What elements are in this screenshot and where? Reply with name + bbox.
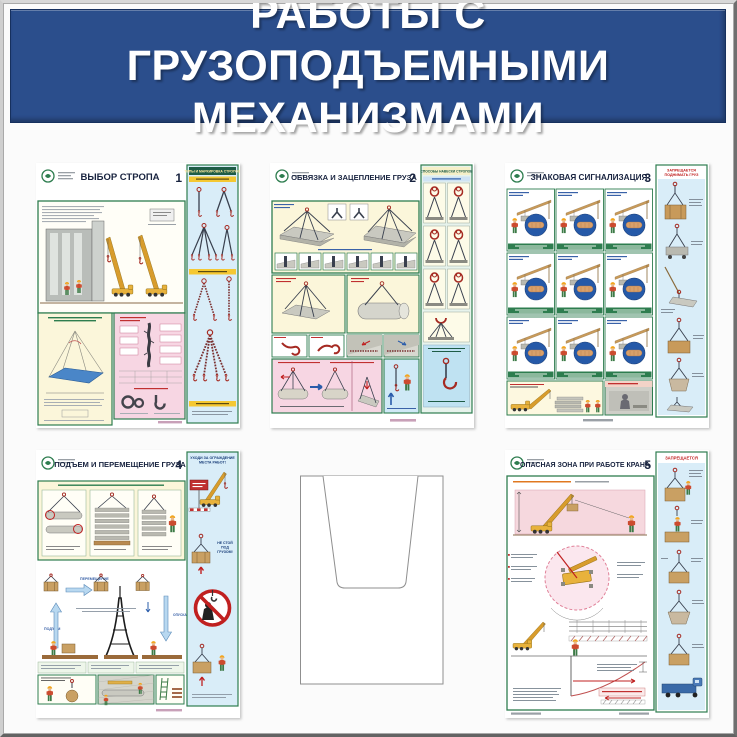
poster-2-number: 2: [409, 171, 416, 185]
worker-stack-cell: [138, 490, 181, 556]
p1-main-scene: [38, 201, 185, 313]
p2-header: ОБВЯЗКА И ЗАЦЕПЛЕНИЕ ГРУЗА 2: [276, 170, 417, 185]
poster-2-title: ОБВЯЗКА И ЗАЦЕПЛЕНИЕ ГРУЗА: [291, 173, 417, 182]
no-stand-caption-line1: НЕ СТОЙ: [217, 541, 233, 545]
poster-5-number: 5: [644, 458, 651, 472]
p4-bottom-cells: [38, 675, 184, 705]
poster-1-title: ВЫБОР СТРОПА: [80, 172, 159, 183]
p4-column-header-line1: УХОДИ ЗА ОГРАЖДЕНИЕ: [190, 456, 235, 460]
poster-1-number: 1: [175, 171, 182, 185]
footer-smallprint: [583, 419, 613, 421]
poster-3-title: ЗНАКОВАЯ СИГНАЛИЗАЦИЯ: [531, 173, 648, 182]
p2-worker-cell: [384, 359, 419, 413]
prohibition-sign-icon: [196, 590, 230, 625]
p1-geometry-section: [38, 313, 112, 425]
no-stand-caption-line2: ПОД: [221, 546, 229, 550]
wire-rope-icon: [148, 323, 149, 367]
board-title-line2: МЕХАНИЗМАМИ: [192, 92, 544, 144]
p2-chain-sling-cell: [347, 275, 419, 333]
safety-information-board: РАБОТЫ С ГРУЗОПОДЪЕМНЫМИ МЕХАНИЗМАМИ ВЫБ…: [0, 0, 737, 737]
poster-5-crane-danger-zone: ОПАСНАЯ ЗОНА ПРИ РАБОТЕ КРАНА 5: [505, 450, 709, 718]
p2-rope-sling-cell: [272, 275, 345, 333]
p4-sequence-section: ПЕРЕМЕЩЕНИЕ ПОДЪЕМ ОПУСКАНИЕ: [38, 574, 195, 673]
p3-prohibited-column: ЗАПРЕЩАЕТСЯ ПОДНИМАТЬ ГРУЗ: [656, 165, 707, 417]
p3-photo-cell: [605, 381, 653, 415]
p3-loading-scene: [507, 381, 603, 415]
poster-5-title: ОПАСНАЯ ЗОНА ПРИ РАБОТЕ КРАНА: [520, 462, 650, 469]
pocket-cutout: [323, 476, 418, 588]
move-arrow-icon: [66, 585, 92, 596]
p1-header: ВЫБОР СТРОПА 1: [42, 170, 182, 185]
p4-header: ПОДЪЕМ И ПЕРЕМЕЩЕНИЕ ГРУЗА 4: [42, 457, 186, 472]
p3-header: ЗНАКОВАЯ СИГНАЛИЗАЦИЯ 3: [511, 170, 651, 185]
p3-column-header-line1: ЗАПРЕЩАЕТСЯ: [667, 169, 696, 173]
tower-structure-icon: [106, 586, 134, 656]
p5-column-header: ЗАПРЕЩАЕТСЯ: [665, 455, 698, 460]
raise-arrow-icon: [51, 603, 62, 648]
p1-column-header: ТИПЫ И МАРКИРОВКА СТРОПОВ: [184, 170, 240, 174]
p4-inspection-section: [38, 481, 185, 560]
poster-4-number: 4: [175, 458, 182, 472]
pipe-load-icon: [102, 690, 144, 696]
poster-4-lifting-moving: ПОДЪЕМ И ПЕРЕМЕЩЕНИЕ ГРУЗА 4: [36, 450, 240, 718]
footer-smallprint: [511, 713, 649, 715]
poster-2-load-slinging: ОБВЯЗКА И ЗАЦЕПЛЕНИЕ ГРУЗА 2: [270, 163, 474, 428]
lower-arrow-icon: [161, 596, 172, 641]
p4-safety-column: УХОДИ ЗА ОГРАЖДЕНИЕ МЕСТА РАБОТ! НЕ СТОЙ: [187, 452, 238, 706]
p2-hitch-column: СПОСОБЫ НАВЕСКИ СТРОПОВ: [420, 165, 473, 413]
no-stand-caption-line3: ГРУЗОМ!: [217, 550, 232, 554]
pipe-load-icon: [358, 303, 404, 319]
poster-1-sling-selection: ВЫБОР СТРОПА 1: [36, 163, 240, 428]
document-pocket-empty: [291, 471, 451, 693]
poster-4-title: ПОДЪЕМ И ПЕРЕМЕЩЕНИЕ ГРУЗА: [54, 460, 186, 469]
p2-main-scene: [272, 201, 419, 273]
p4-column-header-line2: МЕСТА РАБОТ!: [199, 461, 226, 465]
p1-types-column: ТИПЫ И МАРКИРОВКА СТРОПОВ: [184, 165, 240, 423]
p5-prohibited-column: ЗАПРЕЩАЕТСЯ: [656, 452, 707, 712]
stack-cell: [90, 490, 134, 556]
board-title-line1: РАБОТЫ С ГРУЗОПОДЪЕМНЫМИ: [11, 0, 725, 92]
p1-rejection-section: [114, 313, 185, 423]
p2-column-header: СПОСОБЫ НАВЕСКИ СТРОПОВ: [420, 170, 473, 174]
p3-column-header-line2: ПОДНИМАТЬ ГРУЗ: [665, 173, 700, 177]
p5-header: ОПАСНАЯ ЗОНА ПРИ РАБОТЕ КРАНА 5: [511, 457, 651, 472]
vertical-hitch-cell: [424, 345, 470, 407]
footer-smallprint: [158, 421, 182, 423]
board-title-banner: РАБОТЫ С ГРУЗОПОДЪЕМНЫМИ МЕХАНИЗМАМИ: [10, 9, 726, 123]
p2-movement-section: [272, 359, 382, 413]
p2-hook-detail-cells: [272, 335, 419, 357]
poster-3-number: 3: [644, 171, 651, 185]
pipes-cell: [42, 490, 86, 556]
footer-smallprint: [390, 419, 416, 422]
poster-3-hand-signals: ЗНАКОВАЯ СИГНАЛИЗАЦИЯ 3: [505, 163, 709, 428]
p3-signal-grid: [507, 189, 653, 379]
building: [46, 221, 104, 301]
footer-smallprint: [156, 709, 182, 711]
